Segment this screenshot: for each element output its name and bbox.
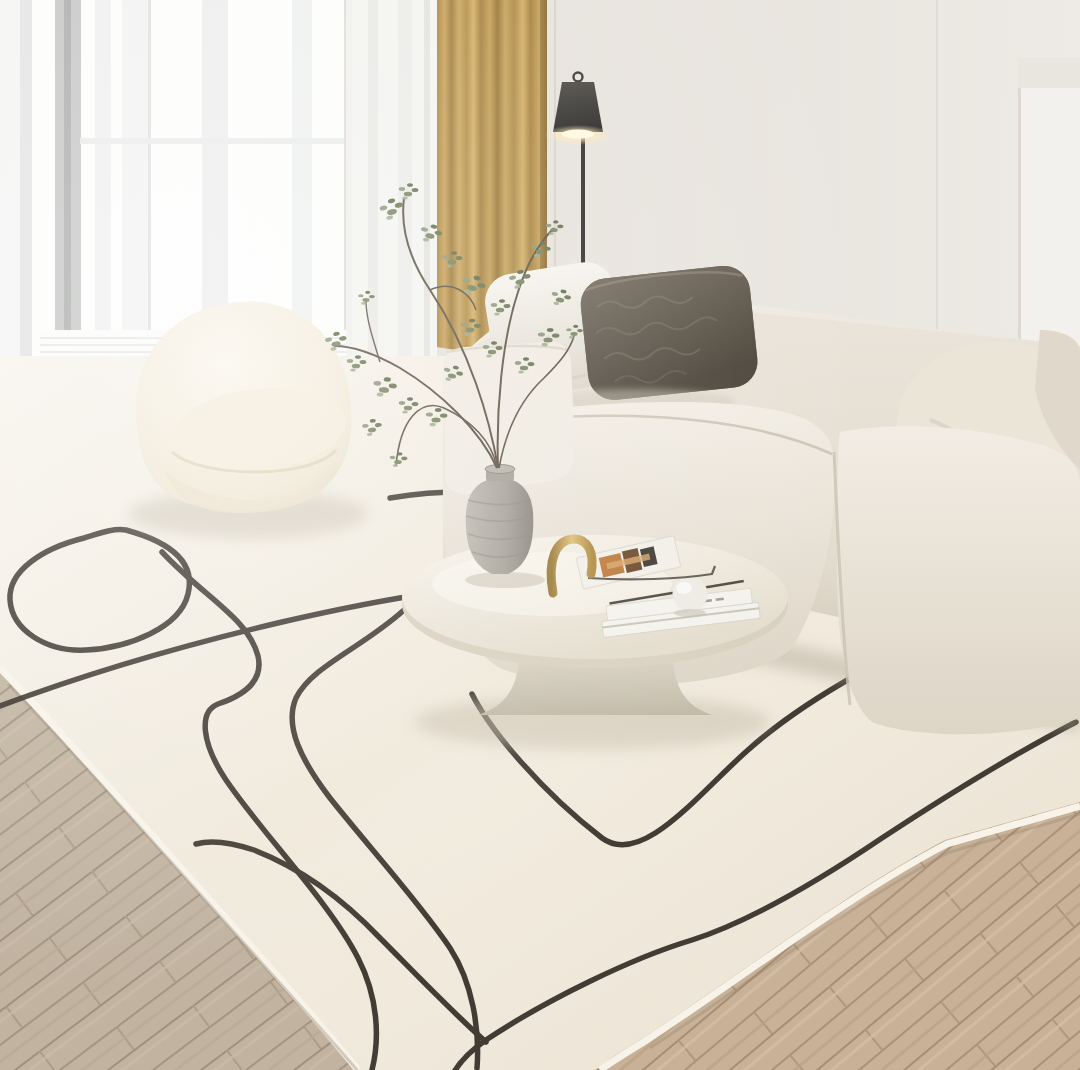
living-room-photo [0,0,1080,1070]
scene-canvas [0,0,1080,1070]
window-light-wash [0,0,1080,1070]
